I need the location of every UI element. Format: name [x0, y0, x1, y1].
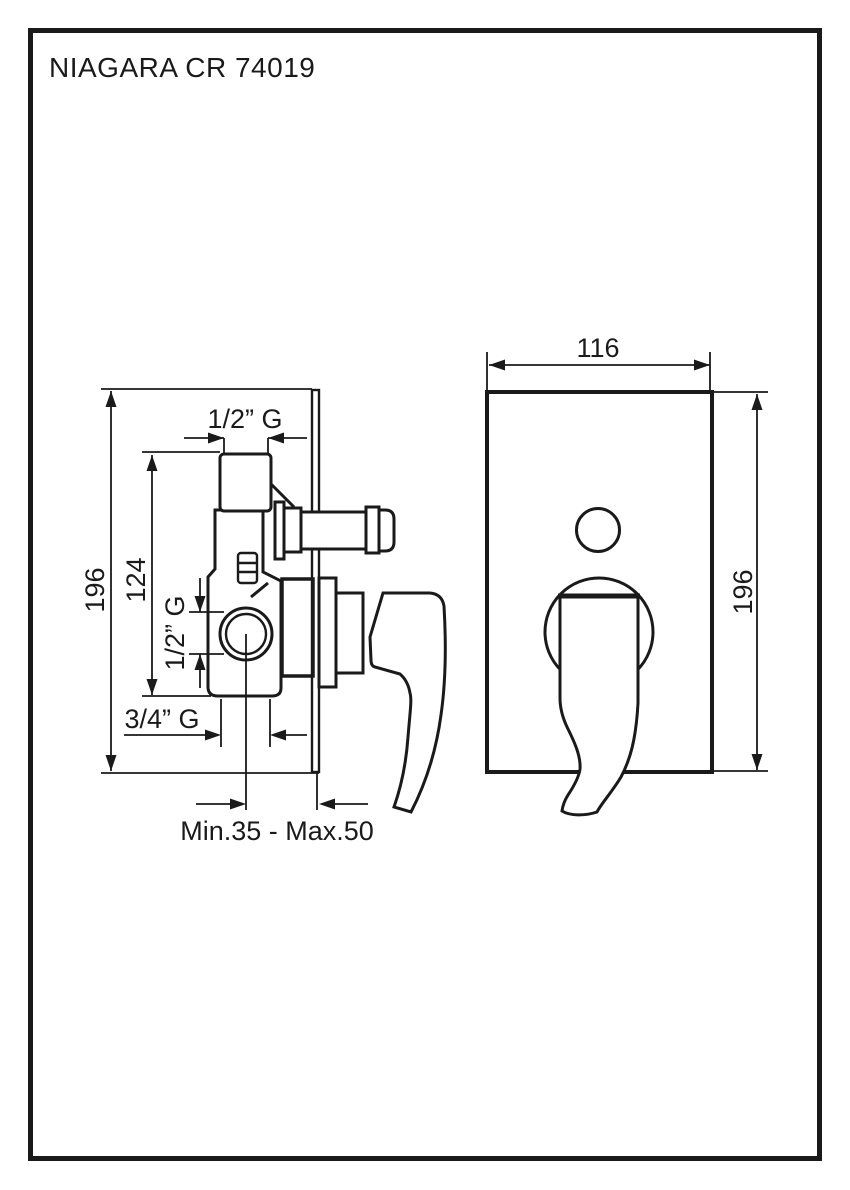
- handle-lever-side: [370, 593, 445, 812]
- dim-depth: Min.35 - Max.50: [180, 816, 374, 846]
- diverter-button-front: [577, 509, 620, 552]
- dim-top-port: 1/2” G: [207, 404, 282, 434]
- dim-front-height: 196: [728, 569, 758, 614]
- front-view: [487, 392, 712, 815]
- diverter-knob-side: [301, 507, 394, 553]
- valve-body: [208, 510, 281, 696]
- dim-side-height: 196: [80, 567, 110, 612]
- cartridge-sleeve: [282, 579, 313, 676]
- diverter-flange-step: [284, 508, 301, 552]
- technical-drawing: 196 124 1/2” G 1/2” G: [0, 0, 850, 1190]
- dim-side-port: 1/2” G: [160, 595, 190, 670]
- top-inlet-port: [220, 454, 271, 511]
- handle-escutcheon-side: [319, 578, 336, 687]
- dim-front-width: 116: [576, 333, 619, 363]
- side-view: [208, 390, 445, 812]
- drawing-sheet: NIAGARA CR 74019: [0, 0, 850, 1190]
- dim-bottom-port: 3/4” G: [124, 704, 199, 734]
- dim-body-height: 124: [121, 557, 151, 602]
- handle-lever-front: [560, 596, 638, 815]
- handle-hub-side: [336, 593, 363, 673]
